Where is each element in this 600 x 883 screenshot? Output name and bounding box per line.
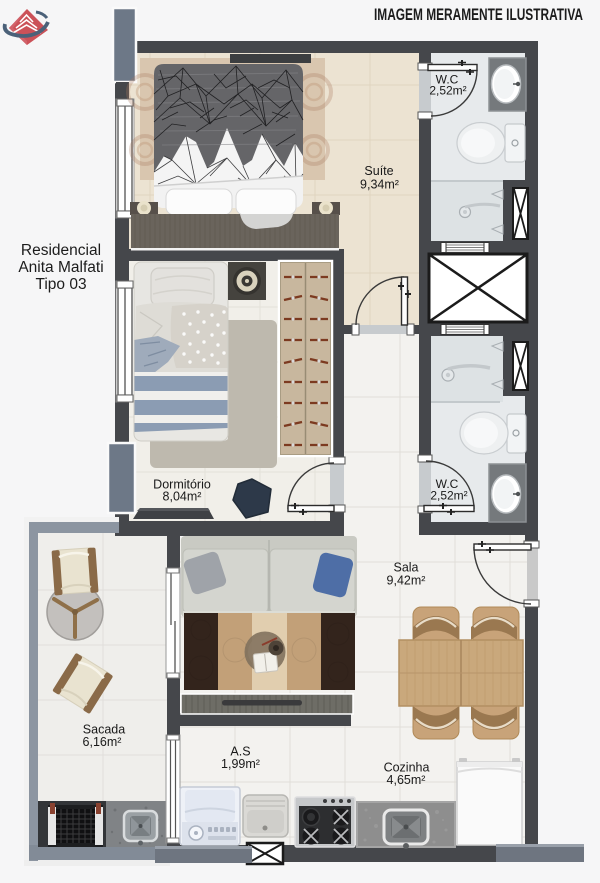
svg-text:2,52m²: 2,52m²	[430, 489, 467, 503]
svg-text:9,34m²: 9,34m²	[360, 178, 399, 192]
svg-text:Anita Malfati: Anita Malfati	[18, 259, 103, 276]
svg-text:1,99m²: 1,99m²	[221, 757, 260, 771]
svg-text:Suíte: Suíte	[364, 164, 393, 178]
svg-text:8,04m²: 8,04m²	[163, 490, 202, 504]
svg-text:4,65m²: 4,65m²	[387, 773, 426, 787]
svg-text:6,16m²: 6,16m²	[83, 735, 122, 749]
svg-text:Sala: Sala	[393, 561, 418, 575]
svg-text:Tipo 03: Tipo 03	[35, 276, 86, 293]
svg-text:Residencial: Residencial	[21, 242, 101, 259]
svg-text:9,42m²: 9,42m²	[387, 574, 426, 588]
svg-text:IMAGEM MERAMENTE ILUSTRATIVA: IMAGEM MERAMENTE ILUSTRATIVA	[374, 6, 583, 24]
svg-text:2,52m²: 2,52m²	[429, 84, 466, 98]
